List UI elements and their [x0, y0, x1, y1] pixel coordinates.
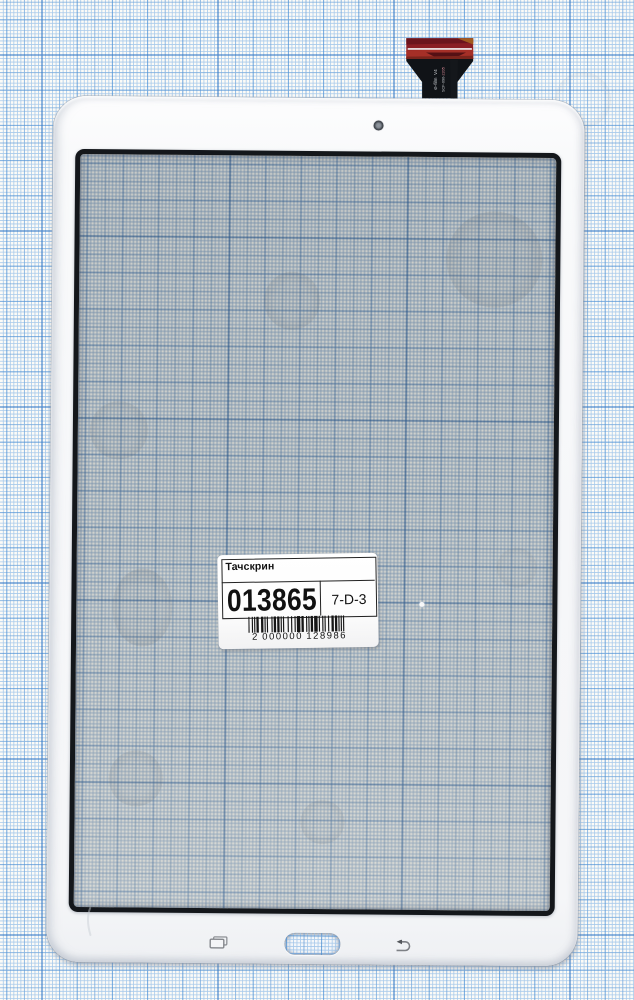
svg-text:SCF-090-2205: SCF-090-2205: [442, 67, 446, 92]
svg-text:⊘-film V4: ⊘-film V4: [433, 69, 438, 90]
